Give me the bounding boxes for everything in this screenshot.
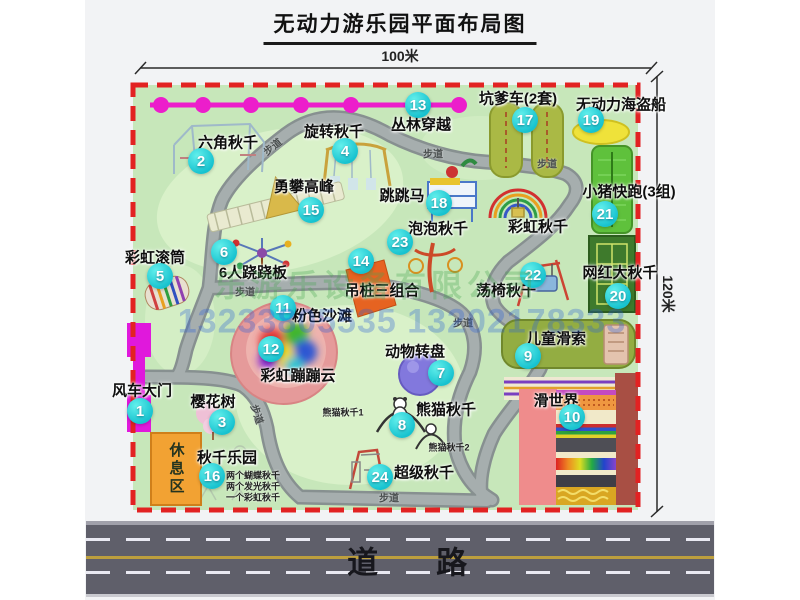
width-dimension-label: 100米 [381,46,418,66]
attraction-label-14: 吊桩三组合 [344,280,419,301]
rest-area: 休息区 [150,432,202,506]
attraction-marker-2: 2 [188,148,214,174]
attraction-marker-1: 1 [127,398,153,424]
attraction-marker-13: 13 [405,92,431,118]
attraction-label-4: 旋转秋千 [304,121,364,142]
attraction-label-21: 小猪快跑(3组) [582,181,675,202]
attraction-label-23: 泡泡秋千 [408,218,468,239]
attraction-marker-10: 10 [559,404,585,430]
attraction-marker-5: 5 [147,263,173,289]
attraction-marker-17: 17 [512,107,538,133]
area-label: 彩虹秋千 [508,216,568,237]
sub-label: 熊猫秋千2 [428,441,469,454]
attraction-marker-12: 12 [258,336,284,362]
attraction-marker-3: 3 [209,409,235,435]
attraction-marker-18: 18 [426,190,452,216]
trail-label: 步道 [423,146,443,161]
attraction-marker-21: 21 [592,201,618,227]
attraction-label-12: 彩虹蹦蹦云 [260,365,335,386]
trail-label: 步道 [453,315,473,330]
attraction-label-8: 熊猫秋千 [416,399,476,420]
attraction-marker-6: 6 [211,239,237,265]
attraction-label-7: 动物转盘 [385,341,445,362]
attraction-label-6: 6人跷跷板 [219,262,287,283]
attraction-marker-16: 16 [199,463,225,489]
attraction-marker-7: 7 [428,360,454,386]
attraction-marker-24: 24 [367,464,393,490]
attraction-label-18: 跳跳马 [379,185,424,206]
attraction-marker-8: 8 [389,412,415,438]
road-label: 道路 [289,537,525,582]
attraction-label-15: 勇攀高峰 [274,176,334,197]
height-dimension-label: 120米 [658,275,678,312]
attraction-marker-15: 15 [298,197,324,223]
attraction-marker-23: 23 [387,229,413,255]
attraction-label-3: 樱花树 [190,391,235,412]
attraction-marker-19: 19 [578,107,604,133]
attraction-marker-9: 9 [515,343,541,369]
trail-label: 步道 [537,156,557,171]
rest-area-label: 休息区 [166,442,187,496]
attraction-label-20: 网红大秋千 [582,262,657,283]
attraction-label-24: 超级秋千 [394,462,454,483]
attraction-label-17: 坑爹车(2套) [479,88,557,109]
attraction-label-11: 粉色沙滩 [292,305,352,326]
page-title: 无动力游乐园平面布局图 [264,8,537,45]
trail-label: 步道 [235,284,255,299]
trail-label: 步道 [379,490,399,505]
attraction-marker-14: 14 [348,248,374,274]
attraction-marker-11: 11 [270,295,296,321]
attraction-marker-22: 22 [520,262,546,288]
road: 道路 [86,521,714,594]
attraction-marker-20: 20 [605,283,631,309]
attraction-marker-4: 4 [332,138,358,164]
playground-layout-map: 无动力游乐园平面布局图 100米 120米 休息区 风车大门1六角秋千2樱花树3… [0,0,800,600]
sub-label: 熊猫秋千1 [322,406,363,419]
sub-label: 一个彩虹秋千 [226,491,280,504]
